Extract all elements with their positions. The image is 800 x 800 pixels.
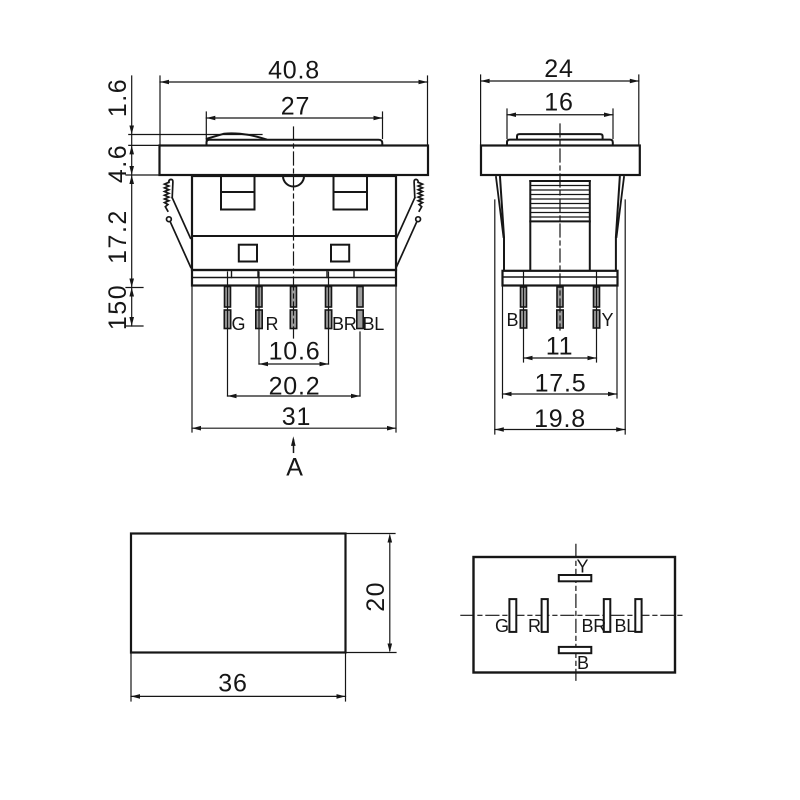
- svg-text:19.8: 19.8: [534, 405, 586, 433]
- svg-text:G: G: [232, 314, 246, 334]
- svg-text:BL: BL: [615, 616, 637, 636]
- svg-text:20.2: 20.2: [269, 373, 321, 401]
- svg-text:10.6: 10.6: [269, 338, 321, 366]
- svg-text:A: A: [286, 454, 303, 482]
- svg-text:Y: Y: [577, 557, 589, 577]
- svg-text:B: B: [577, 653, 589, 673]
- svg-text:16: 16: [544, 89, 573, 117]
- svg-text:4.6: 4.6: [104, 144, 132, 183]
- svg-text:BL: BL: [363, 314, 385, 334]
- svg-text:31: 31: [282, 403, 311, 431]
- svg-text:G: G: [495, 616, 509, 636]
- svg-text:20: 20: [362, 581, 390, 612]
- svg-text:R: R: [266, 314, 279, 334]
- svg-text:B: B: [507, 310, 519, 330]
- svg-text:BR: BR: [582, 616, 607, 636]
- svg-text:24: 24: [544, 55, 573, 83]
- svg-text:17.5: 17.5: [535, 370, 587, 398]
- svg-text:BR: BR: [332, 314, 357, 334]
- svg-text:11: 11: [546, 333, 574, 361]
- svg-text:Y: Y: [602, 310, 614, 330]
- svg-text:36: 36: [218, 670, 247, 698]
- svg-text:17.2: 17.2: [104, 209, 132, 264]
- svg-text:40.8: 40.8: [268, 57, 320, 85]
- svg-text:1.6: 1.6: [104, 78, 132, 117]
- svg-text:150: 150: [104, 284, 132, 330]
- svg-text:R: R: [528, 616, 541, 636]
- svg-text:27: 27: [281, 93, 310, 121]
